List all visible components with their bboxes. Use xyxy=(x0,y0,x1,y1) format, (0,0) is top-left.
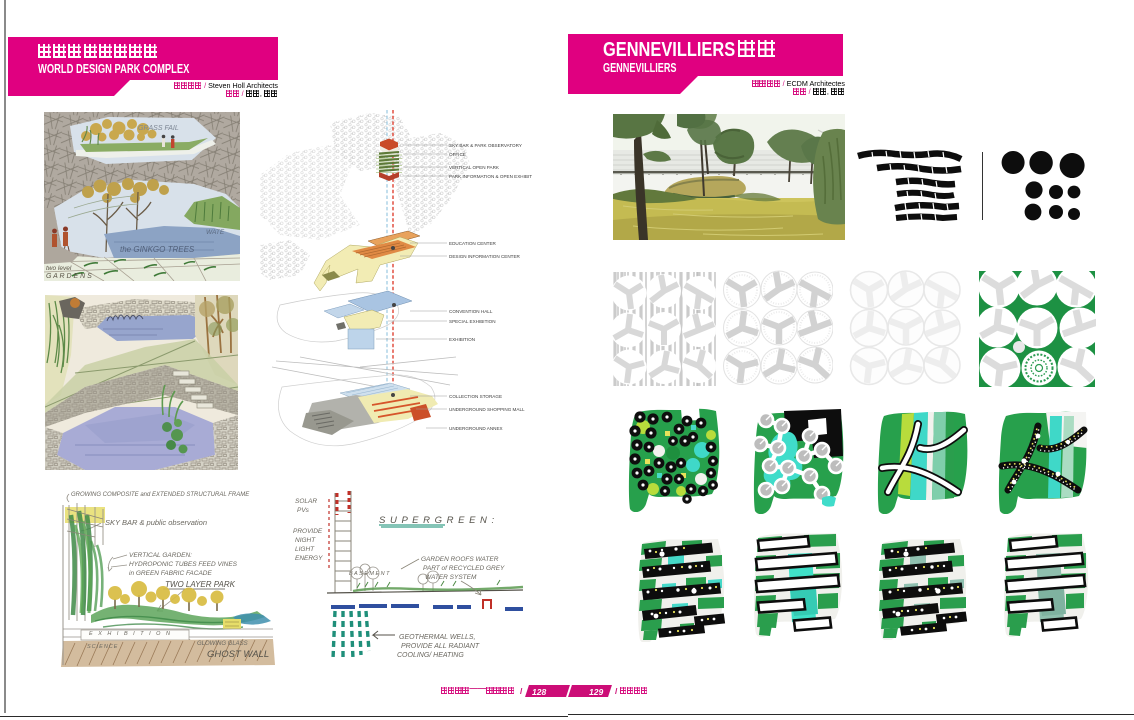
svg-text:ENERGY: ENERGY xyxy=(295,555,323,562)
svg-text:SOLAR: SOLAR xyxy=(295,498,317,505)
svg-text:two level: two level xyxy=(46,265,72,272)
svg-text:S U P E R G R E E N :: S U P E R G R E E N : xyxy=(379,515,495,526)
svg-text:GLOWING GLASS: GLOWING GLASS xyxy=(197,641,248,647)
svg-text:DESIGN INFORMATION CENTER: DESIGN INFORMATION CENTER xyxy=(449,254,521,259)
svg-text:CONVENTION HALL: CONVENTION HALL xyxy=(449,309,493,314)
svg-text:UNDERGROUND SHOPPING MALL: UNDERGROUND SHOPPING MALL xyxy=(449,407,525,412)
svg-text:LIGHT: LIGHT xyxy=(295,546,315,553)
svg-text:WATE: WATE xyxy=(206,229,225,236)
svg-text:GHOST WALL: GHOST WALL xyxy=(207,649,269,660)
svg-text:EDUCATION CENTER: EDUCATION CENTER xyxy=(449,241,497,246)
svg-text:PART of RECYCLED GREY: PART of RECYCLED GREY xyxy=(423,565,505,572)
svg-text:GEOTHERMAL WELLS,: GEOTHERMAL WELLS, xyxy=(399,634,476,641)
svg-text:SKY BAR & PARK OBSERVATORY: SKY BAR & PARK OBSERVATORY xyxy=(449,143,522,148)
svg-text:EXHIBITION: EXHIBITION xyxy=(449,337,475,342)
svg-text:COOLING/ HEATING: COOLING/ HEATING xyxy=(397,652,464,659)
svg-text:VERTICAL GARDEN:: VERTICAL GARDEN: xyxy=(129,552,192,559)
svg-text:GRASS FAIL: GRASS FAIL xyxy=(138,125,179,132)
svg-text:PROVIDE: PROVIDE xyxy=(293,528,323,535)
svg-text:PVs: PVs xyxy=(297,507,310,514)
svg-text:TWO LAYER PARK: TWO LAYER PARK xyxy=(165,580,236,589)
svg-text:SPECIAL EXHIBITION: SPECIAL EXHIBITION xyxy=(449,319,496,324)
svg-text:GROWING COMPOSITE and EXTENDED: GROWING COMPOSITE and EXTENDED STRUCTURA… xyxy=(71,492,250,498)
svg-text:COLLECTION STORAGE: COLLECTION STORAGE xyxy=(449,394,502,399)
svg-text:SCIENCE: SCIENCE xyxy=(87,644,118,650)
svg-text:PROVIDE ALL RADIANT: PROVIDE ALL RADIANT xyxy=(401,643,480,650)
svg-text:VERTICAL OPEN PARK: VERTICAL OPEN PARK xyxy=(449,165,500,170)
svg-text:NIGHT: NIGHT xyxy=(295,537,316,544)
svg-text:in GREEN FABRIC FACADE: in GREEN FABRIC FACADE xyxy=(129,570,212,577)
svg-text:OFFICE: OFFICE xyxy=(449,152,466,157)
svg-text:E X H I B I T I O N: E X H I B I T I O N xyxy=(89,631,172,637)
svg-text:SKY BAR & public observation: SKY BAR & public observation xyxy=(105,518,207,527)
svg-text:HYDROPONIC TUBES FEED VINES: HYDROPONIC TUBES FEED VINES xyxy=(129,561,238,568)
svg-text:the GINKGO TREES: the GINKGO TREES xyxy=(120,245,195,254)
svg-text:B A S E M E N T: B A S E M E N T xyxy=(349,571,390,577)
svg-text:GARDEN ROOFS WATER: GARDEN ROOFS WATER xyxy=(421,556,499,563)
svg-text:G A R D E N S: G A R D E N S xyxy=(46,273,92,280)
svg-text:WATER SYSTEM: WATER SYSTEM xyxy=(425,574,477,581)
svg-text:UNDERGROUND ANNEX: UNDERGROUND ANNEX xyxy=(449,426,503,431)
svg-text:PARK INFORMATION & OPEN EXHIBI: PARK INFORMATION & OPEN EXHIBITION xyxy=(449,174,532,179)
